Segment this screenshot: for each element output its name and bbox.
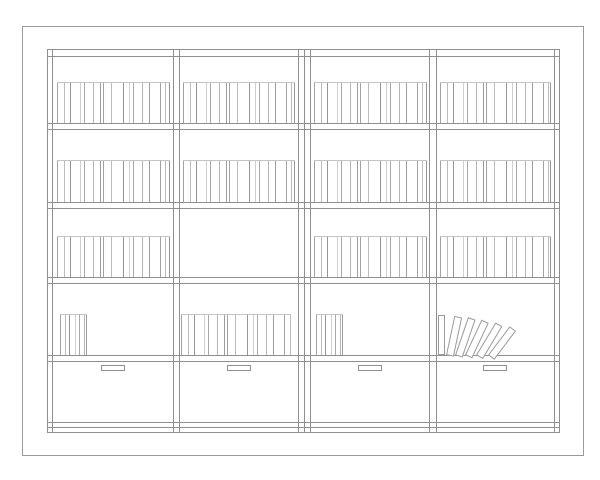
book-spine <box>160 83 161 124</box>
book-spine <box>506 237 507 278</box>
book-spine <box>342 315 343 356</box>
book-spine <box>249 83 250 124</box>
book-spine <box>294 161 295 203</box>
book-spine <box>247 315 248 356</box>
shelf-line <box>47 123 560 124</box>
book-spine <box>550 161 551 203</box>
book-spine <box>181 315 182 356</box>
book-spine <box>142 237 143 278</box>
book-spine <box>486 83 487 124</box>
book-spine <box>84 315 85 356</box>
book-spine <box>476 237 477 278</box>
book-spine <box>390 237 391 278</box>
book-spine <box>100 161 101 203</box>
book-spine <box>259 83 260 124</box>
book-spine <box>525 161 526 203</box>
book-run <box>57 82 170 123</box>
book-spine <box>65 315 66 356</box>
book-spine <box>275 83 276 124</box>
book-spine <box>422 237 423 278</box>
book-spine <box>494 83 495 124</box>
shelf-line <box>47 208 560 209</box>
book-spine <box>69 315 70 356</box>
book-spine <box>219 161 220 203</box>
book-spine <box>321 237 322 278</box>
book-spine <box>93 161 94 203</box>
panel-line <box>310 49 311 432</box>
book-spine <box>80 83 81 124</box>
book-spine <box>543 83 544 124</box>
book-spine <box>512 237 513 278</box>
book-spine <box>208 315 209 356</box>
book-spine <box>273 315 274 356</box>
book-spine <box>357 83 358 124</box>
book-spine <box>129 83 130 124</box>
book-spine <box>386 237 387 278</box>
book-spine <box>368 237 369 278</box>
book-run <box>60 314 87 355</box>
book-spine <box>483 83 484 124</box>
book-spine <box>111 83 112 124</box>
book-spine <box>426 83 427 124</box>
book-spine <box>268 161 269 203</box>
book-spine <box>327 237 328 278</box>
book-spine <box>255 161 256 203</box>
book-spine <box>453 237 454 278</box>
book-spine <box>440 237 441 278</box>
panel-line <box>436 49 437 432</box>
book-spine <box>86 315 87 356</box>
book-spine <box>257 315 258 356</box>
book-run <box>314 236 427 277</box>
book-spine <box>440 83 441 124</box>
book-spine <box>60 315 61 356</box>
book-spine <box>340 315 341 356</box>
book-spine <box>525 237 526 278</box>
book-spine <box>169 161 170 203</box>
book-spine <box>93 83 94 124</box>
book-spine <box>291 83 292 124</box>
book-spine <box>550 83 551 124</box>
book-spine <box>75 315 76 356</box>
shelf-line <box>47 56 560 57</box>
shelf-line <box>47 49 560 50</box>
book-spine <box>486 161 487 203</box>
book-run <box>57 160 170 202</box>
book-spine <box>516 237 517 278</box>
shelf-line <box>47 283 560 284</box>
book-spine <box>494 161 495 203</box>
book-spine <box>321 315 322 356</box>
book-spine <box>210 161 211 203</box>
book-spine <box>548 83 549 124</box>
book-spine <box>337 237 338 278</box>
book-spine <box>516 83 517 124</box>
book-spine <box>123 161 124 203</box>
book-spine <box>165 161 166 203</box>
book-spine <box>532 83 533 124</box>
book-spine <box>506 83 507 124</box>
book-spine <box>543 237 544 278</box>
panel-line <box>304 49 305 432</box>
book-spine <box>476 83 477 124</box>
book-spine <box>399 237 400 278</box>
panel-line <box>179 49 180 432</box>
book-spine <box>275 161 276 203</box>
panel-line <box>554 49 555 432</box>
book-spine <box>422 161 423 203</box>
book-spine <box>368 83 369 124</box>
book-spine <box>196 161 197 203</box>
book-spine <box>169 237 170 278</box>
book-spine <box>525 83 526 124</box>
book-spine <box>294 83 295 124</box>
book-spine <box>360 237 361 278</box>
book-spine <box>406 161 407 203</box>
book-spine <box>226 161 227 203</box>
shelf-line <box>47 427 560 428</box>
leaning-book <box>438 315 445 355</box>
book-spine <box>483 161 484 203</box>
drawer-handle <box>101 365 125 371</box>
book-spine <box>103 161 104 203</box>
book-spine <box>103 237 104 278</box>
book-spine <box>406 83 407 124</box>
book-spine <box>133 161 134 203</box>
book-spine <box>357 161 358 203</box>
book-spine <box>255 83 256 124</box>
book-spine <box>453 161 454 203</box>
book-spine <box>188 315 189 356</box>
book-spine <box>390 83 391 124</box>
book-spine <box>142 83 143 124</box>
book-spine <box>512 161 513 203</box>
book-spine <box>165 83 166 124</box>
book-spine <box>417 161 418 203</box>
book-spine <box>440 161 441 203</box>
book-spine <box>447 83 448 124</box>
panel-line <box>52 49 53 432</box>
book-spine <box>210 83 211 124</box>
book-spine <box>350 83 351 124</box>
book-spine <box>149 161 150 203</box>
book-spine <box>219 83 220 124</box>
book-spine <box>64 83 65 124</box>
panel-line <box>47 49 48 432</box>
book-spine <box>142 161 143 203</box>
book-spine <box>133 237 134 278</box>
drawer-handle <box>227 365 251 371</box>
book-spine <box>483 237 484 278</box>
book-spine <box>406 237 407 278</box>
shelf-line <box>47 129 560 130</box>
book-spine <box>341 161 342 203</box>
book-spine <box>337 161 338 203</box>
book-run <box>183 82 295 123</box>
book-spine <box>169 83 170 124</box>
book-spine <box>183 83 184 124</box>
book-spine <box>190 161 191 203</box>
book-spine <box>268 83 269 124</box>
book-spine <box>386 83 387 124</box>
book-spine <box>350 237 351 278</box>
book-spine <box>57 83 58 124</box>
book-spine <box>417 83 418 124</box>
book-spine <box>194 315 195 356</box>
book-spine <box>80 161 81 203</box>
book-spine <box>386 161 387 203</box>
book-spine <box>467 237 468 278</box>
book-spine <box>532 161 533 203</box>
bookshelf-elevation-drawing <box>0 0 600 480</box>
book-spine <box>335 315 336 356</box>
book-spine <box>380 161 381 203</box>
book-spine <box>327 161 328 203</box>
book-spine <box>337 83 338 124</box>
book-spine <box>314 237 315 278</box>
book-spine <box>286 83 287 124</box>
book-spine <box>399 83 400 124</box>
book-spine <box>548 237 549 278</box>
book-spine <box>129 161 130 203</box>
book-spine <box>266 315 267 356</box>
book-spine <box>70 83 71 124</box>
book-spine <box>111 237 112 278</box>
book-spine <box>206 161 207 203</box>
shelf-line <box>47 361 560 362</box>
book-spine <box>284 315 285 356</box>
book-spine <box>467 83 468 124</box>
book-spine <box>160 161 161 203</box>
book-spine <box>331 315 332 356</box>
shelf-line <box>47 202 560 203</box>
book-spine <box>226 83 227 124</box>
book-spine <box>165 237 166 278</box>
book-spine <box>64 237 65 278</box>
book-spine <box>183 161 184 203</box>
book-spine <box>84 237 85 278</box>
book-spine <box>237 161 238 203</box>
book-spine <box>149 237 150 278</box>
shelf-line <box>47 432 560 433</box>
book-spine <box>476 161 477 203</box>
book-spine <box>253 315 254 356</box>
book-spine <box>290 315 291 356</box>
book-spine <box>103 83 104 124</box>
book-spine <box>70 237 71 278</box>
book-spine <box>368 161 369 203</box>
book-spine <box>463 237 464 278</box>
book-spine <box>259 161 260 203</box>
book-spine <box>123 237 124 278</box>
book-spine <box>314 83 315 124</box>
book-spine <box>133 83 134 124</box>
book-spine <box>422 83 423 124</box>
book-run <box>440 82 551 123</box>
shelf-line <box>47 422 560 423</box>
book-spine <box>426 161 427 203</box>
book-spine <box>548 161 549 203</box>
book-spine <box>217 315 218 356</box>
book-spine <box>380 83 381 124</box>
book-spine <box>286 161 287 203</box>
drawer-handle <box>358 365 382 371</box>
book-spine <box>229 83 230 124</box>
book-spine <box>380 237 381 278</box>
book-spine <box>190 83 191 124</box>
book-spine <box>463 83 464 124</box>
book-spine <box>417 237 418 278</box>
book-run <box>183 160 295 202</box>
book-spine <box>196 83 197 124</box>
book-spine <box>494 237 495 278</box>
book-spine <box>447 161 448 203</box>
book-spine <box>149 83 150 124</box>
book-run <box>440 236 551 277</box>
book-spine <box>160 237 161 278</box>
book-spine <box>357 237 358 278</box>
book-spine <box>512 83 513 124</box>
book-spine <box>229 161 230 203</box>
drawer-handle <box>483 365 507 371</box>
book-spine <box>399 161 400 203</box>
book-spine <box>80 237 81 278</box>
panel-line <box>298 49 299 432</box>
book-spine <box>64 161 65 203</box>
book-run <box>314 160 427 202</box>
panel-line <box>429 49 430 432</box>
book-spine <box>543 161 544 203</box>
book-spine <box>57 237 58 278</box>
panel-line <box>173 49 174 432</box>
book-run <box>316 314 343 355</box>
book-spine <box>360 83 361 124</box>
book-spine <box>453 83 454 124</box>
book-spine <box>532 237 533 278</box>
book-spine <box>123 83 124 124</box>
book-spine <box>224 315 225 356</box>
book-spine <box>249 161 250 203</box>
book-spine <box>70 161 71 203</box>
book-spine <box>321 161 322 203</box>
book-spine <box>84 83 85 124</box>
book-spine <box>206 83 207 124</box>
book-run <box>440 160 551 202</box>
book-spine <box>129 237 130 278</box>
book-spine <box>204 315 205 356</box>
book-spine <box>100 83 101 124</box>
book-spine <box>486 237 487 278</box>
book-spine <box>463 161 464 203</box>
book-spine <box>227 315 228 356</box>
book-run <box>314 82 427 123</box>
book-spine <box>291 161 292 203</box>
book-spine <box>550 237 551 278</box>
book-spine <box>341 237 342 278</box>
shelf-line <box>47 277 560 278</box>
book-spine <box>447 237 448 278</box>
book-spine <box>237 83 238 124</box>
book-spine <box>100 237 101 278</box>
book-run <box>181 314 291 355</box>
book-spine <box>84 161 85 203</box>
book-spine <box>426 237 427 278</box>
book-spine <box>506 161 507 203</box>
book-run <box>57 236 170 277</box>
book-spine <box>467 161 468 203</box>
book-spine <box>321 83 322 124</box>
book-spine <box>111 161 112 203</box>
book-spine <box>327 83 328 124</box>
book-spine <box>341 83 342 124</box>
book-spine <box>57 161 58 203</box>
book-spine <box>350 161 351 203</box>
book-spine <box>516 161 517 203</box>
book-spine <box>93 237 94 278</box>
book-spine <box>316 315 317 356</box>
book-spine <box>314 161 315 203</box>
book-spine <box>360 161 361 203</box>
book-spine <box>390 161 391 203</box>
book-spine <box>325 315 326 356</box>
panel-line <box>559 49 560 432</box>
book-spine <box>79 315 80 356</box>
book-spine <box>235 315 236 356</box>
